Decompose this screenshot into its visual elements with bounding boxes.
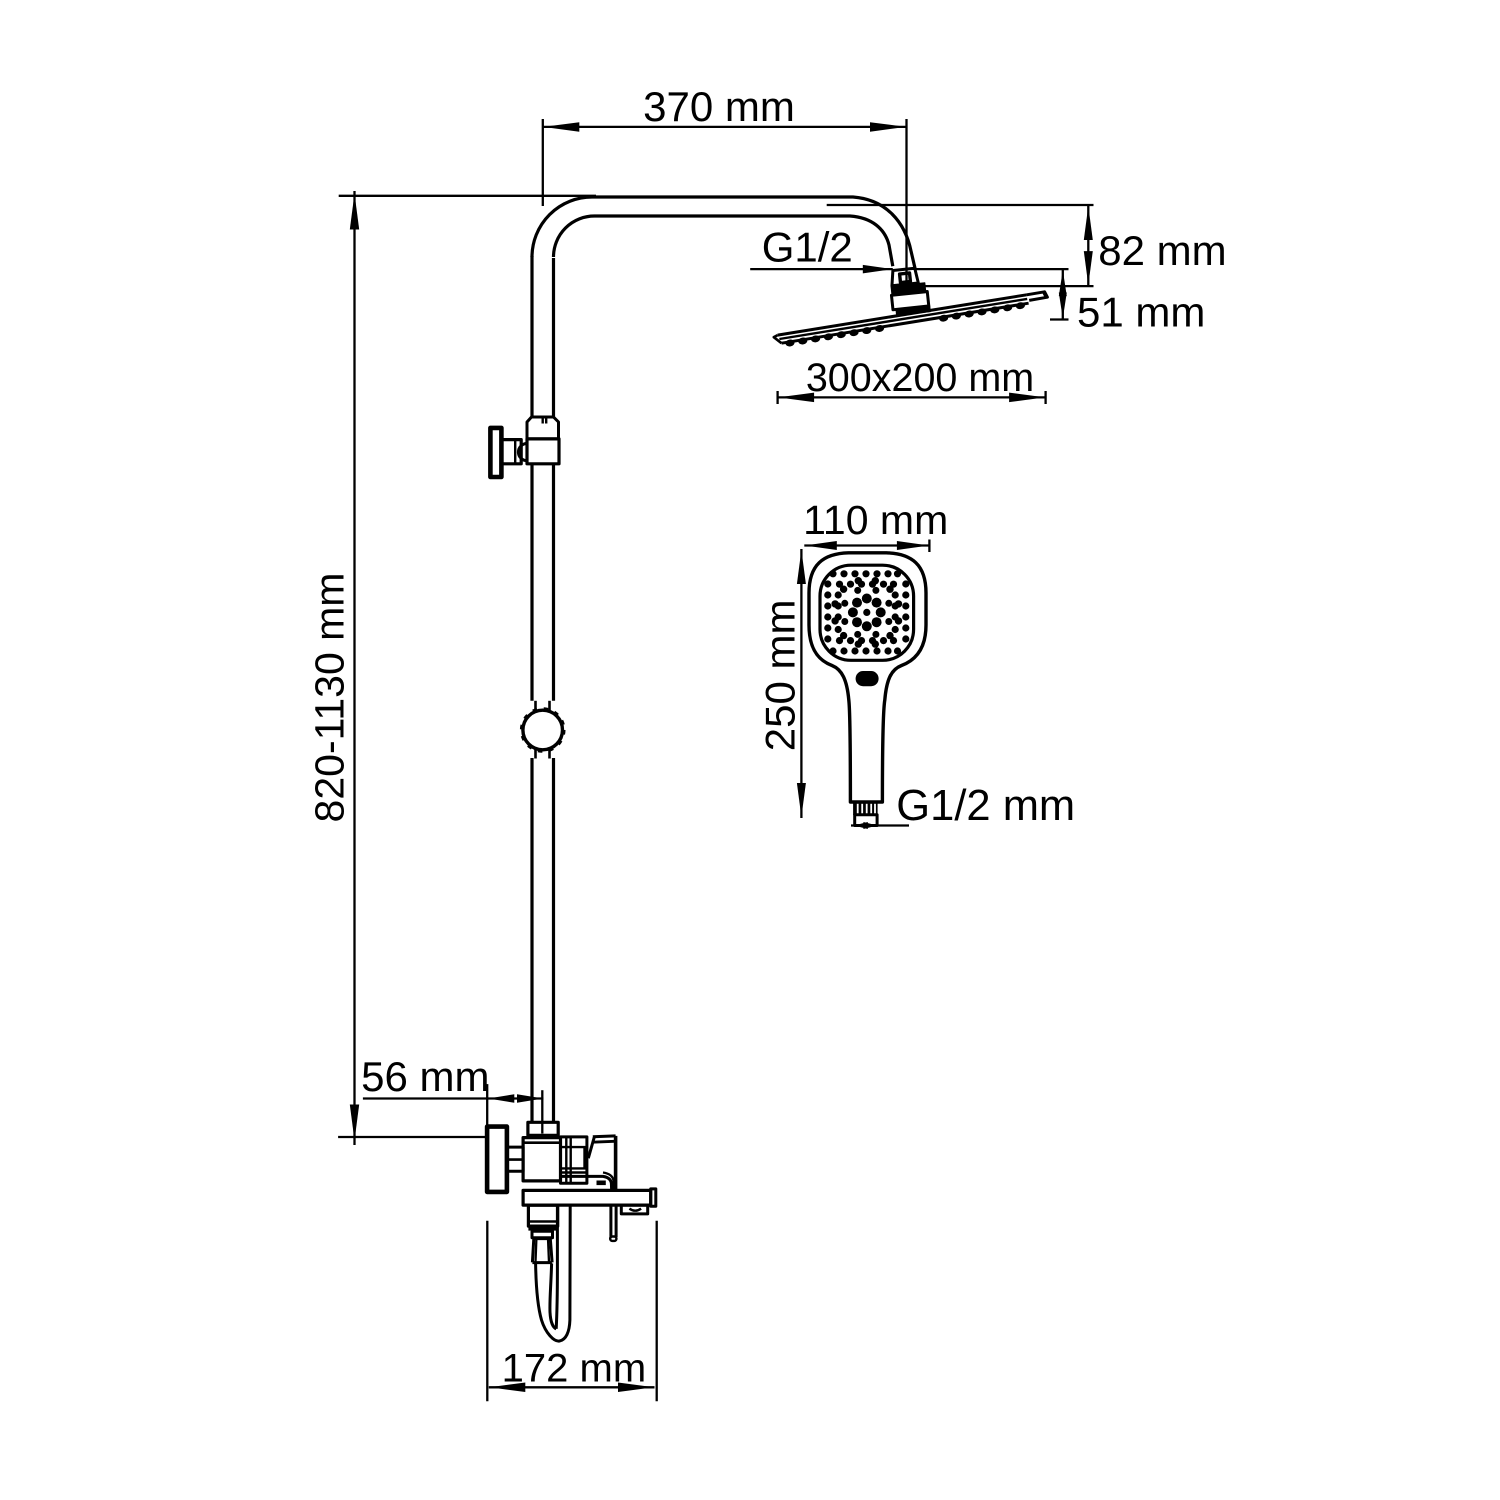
svg-text:G1/2 mm: G1/2 mm [896, 782, 1075, 830]
svg-text:110 mm: 110 mm [803, 497, 948, 543]
svg-text:250 mm: 250 mm [757, 600, 804, 752]
svg-text:300x200 mm: 300x200 mm [806, 356, 1034, 400]
svg-text:820-1130 mm: 820-1130 mm [307, 573, 353, 823]
svg-text:370 mm: 370 mm [643, 83, 795, 130]
svg-text:51 mm: 51 mm [1077, 289, 1205, 336]
svg-text:82 mm: 82 mm [1098, 227, 1226, 274]
svg-text:172 mm: 172 mm [502, 1347, 647, 1391]
svg-text:56 mm: 56 mm [361, 1053, 489, 1100]
svg-text:G1/2: G1/2 [762, 224, 853, 271]
